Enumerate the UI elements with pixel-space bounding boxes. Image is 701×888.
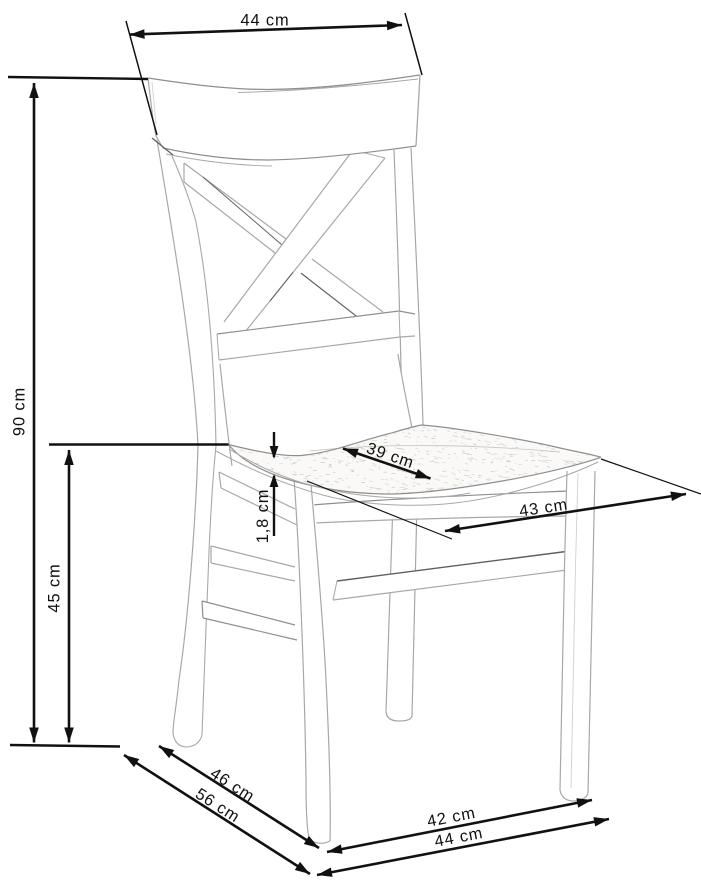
- svg-text:44 cm: 44 cm: [240, 11, 289, 29]
- svg-text:1,8 cm: 1,8 cm: [254, 489, 272, 544]
- svg-text:90 cm: 90 cm: [10, 387, 28, 436]
- svg-text:45 cm: 45 cm: [45, 563, 63, 612]
